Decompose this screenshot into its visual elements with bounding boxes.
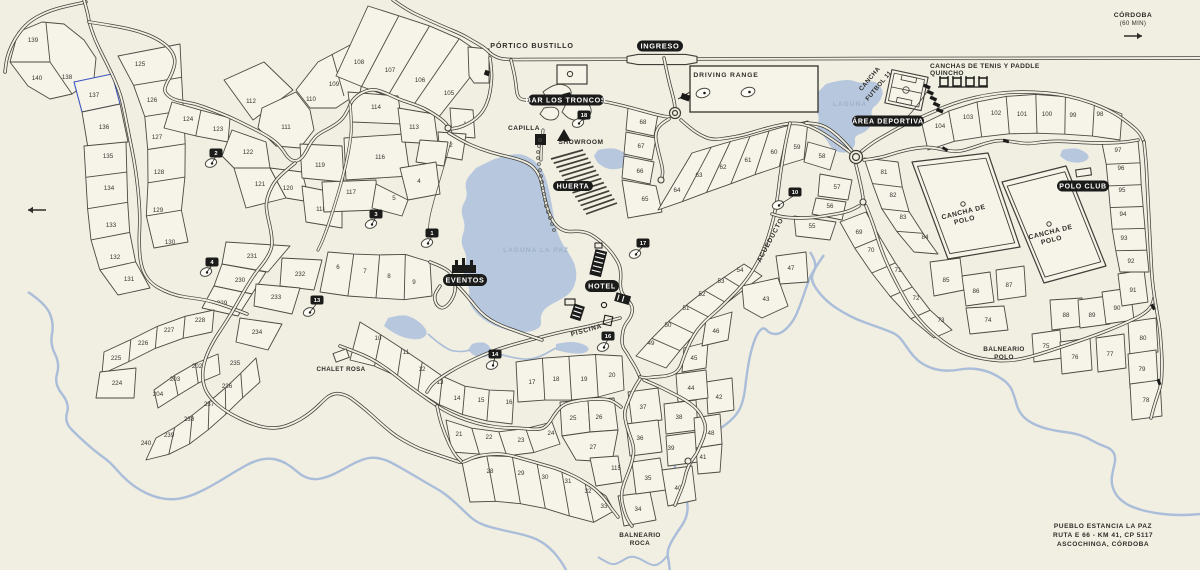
svg-text:HUERTA: HUERTA xyxy=(557,184,590,191)
svg-text:57: 57 xyxy=(834,184,841,191)
svg-text:85: 85 xyxy=(943,277,950,284)
svg-text:47: 47 xyxy=(788,265,795,272)
svg-text:91: 91 xyxy=(1130,287,1137,294)
svg-text:45: 45 xyxy=(691,355,698,362)
svg-text:5: 5 xyxy=(392,195,396,202)
svg-text:26: 26 xyxy=(596,414,603,421)
svg-text:71: 71 xyxy=(895,267,902,274)
svg-text:130: 130 xyxy=(165,239,176,246)
svg-text:96: 96 xyxy=(1118,165,1125,172)
svg-text:55: 55 xyxy=(809,223,816,230)
svg-text:28: 28 xyxy=(487,468,494,475)
svg-text:25: 25 xyxy=(570,415,577,422)
svg-text:228: 228 xyxy=(195,317,206,324)
svg-text:37: 37 xyxy=(640,404,647,411)
svg-text:230: 230 xyxy=(235,277,246,284)
svg-text:113: 113 xyxy=(409,124,419,131)
svg-text:HOTEL: HOTEL xyxy=(588,282,616,291)
svg-text:82: 82 xyxy=(890,192,897,199)
svg-text:SHOWROOM: SHOWROOM xyxy=(558,139,603,146)
svg-text:DRIVING RANGE: DRIVING RANGE xyxy=(693,72,758,79)
svg-text:122: 122 xyxy=(243,149,254,156)
svg-text:14: 14 xyxy=(492,352,499,358)
svg-text:87: 87 xyxy=(1006,282,1013,289)
svg-text:29: 29 xyxy=(518,470,525,477)
svg-text:14: 14 xyxy=(454,395,461,402)
svg-text:76: 76 xyxy=(1072,354,1079,361)
svg-text:16: 16 xyxy=(506,399,513,406)
svg-text:101: 101 xyxy=(1017,111,1028,118)
svg-text:92: 92 xyxy=(1128,258,1135,265)
svg-text:51: 51 xyxy=(683,305,690,312)
svg-text:109: 109 xyxy=(329,81,340,88)
svg-text:13: 13 xyxy=(314,298,321,304)
svg-text:16: 16 xyxy=(605,334,612,340)
svg-text:CAPILLA: CAPILLA xyxy=(508,125,540,132)
svg-text:19: 19 xyxy=(581,376,588,383)
svg-text:36: 36 xyxy=(637,435,644,442)
svg-text:94: 94 xyxy=(1120,211,1127,218)
svg-text:95: 95 xyxy=(1119,187,1126,194)
svg-text:34: 34 xyxy=(635,506,642,513)
svg-text:115: 115 xyxy=(611,465,621,472)
svg-text:38: 38 xyxy=(676,414,683,421)
svg-text:69: 69 xyxy=(856,229,863,236)
svg-text:132: 132 xyxy=(110,254,121,261)
svg-text:224: 224 xyxy=(112,380,123,387)
svg-text:73: 73 xyxy=(938,317,945,324)
svg-text:53: 53 xyxy=(718,278,725,285)
svg-text:23: 23 xyxy=(518,437,525,444)
svg-text:62: 62 xyxy=(720,164,727,171)
svg-text:61: 61 xyxy=(745,157,752,164)
svg-text:10: 10 xyxy=(792,190,798,196)
svg-text:39: 39 xyxy=(668,445,675,452)
svg-text:POLO CLUB: POLO CLUB xyxy=(1059,184,1107,191)
svg-text:22: 22 xyxy=(486,434,493,441)
svg-text:64: 64 xyxy=(674,187,681,194)
svg-text:117: 117 xyxy=(346,189,356,196)
svg-text:17: 17 xyxy=(529,379,536,386)
svg-text:ÁREA DEPORTIVA: ÁREA DEPORTIVA xyxy=(852,117,924,126)
svg-text:66: 66 xyxy=(637,168,644,175)
svg-text:120: 120 xyxy=(283,185,294,192)
svg-text:52: 52 xyxy=(699,291,706,298)
svg-text:50: 50 xyxy=(665,322,672,329)
svg-text:232: 232 xyxy=(295,271,306,278)
svg-text:84: 84 xyxy=(922,234,929,241)
svg-text:49: 49 xyxy=(648,340,655,347)
svg-text:21: 21 xyxy=(456,431,463,438)
svg-text:79: 79 xyxy=(1139,366,1146,373)
svg-text:INGRESO: INGRESO xyxy=(641,42,680,51)
svg-text:QUINCHO: QUINCHO xyxy=(930,70,964,77)
svg-text:127: 127 xyxy=(152,134,163,141)
svg-text:104: 104 xyxy=(935,123,946,130)
svg-text:4: 4 xyxy=(417,178,421,185)
svg-text:18: 18 xyxy=(581,113,588,119)
svg-text:86: 86 xyxy=(973,288,980,295)
svg-text:226: 226 xyxy=(138,340,149,347)
svg-text:LAGUNA: LAGUNA xyxy=(833,101,867,108)
svg-text:137: 137 xyxy=(89,92,100,99)
svg-text:81: 81 xyxy=(881,169,888,176)
svg-text:65: 65 xyxy=(642,196,649,203)
svg-text:58: 58 xyxy=(819,153,826,160)
svg-text:93: 93 xyxy=(1121,235,1128,242)
svg-text:44: 44 xyxy=(688,385,695,392)
svg-text:238: 238 xyxy=(184,416,195,423)
svg-text:32: 32 xyxy=(585,488,592,495)
svg-text:98: 98 xyxy=(1097,111,1104,118)
svg-text:100: 100 xyxy=(1042,111,1053,118)
svg-text:110: 110 xyxy=(306,96,316,103)
svg-text:27: 27 xyxy=(590,444,597,451)
svg-text:74: 74 xyxy=(985,317,992,324)
svg-text:135: 135 xyxy=(103,153,114,160)
svg-text:112: 112 xyxy=(246,98,256,105)
svg-text:PÓRTICO BUSTILLO: PÓRTICO BUSTILLO xyxy=(490,41,573,50)
svg-text:227: 227 xyxy=(164,327,175,334)
svg-text:203: 203 xyxy=(170,376,181,383)
svg-text:59: 59 xyxy=(794,144,801,151)
svg-text:131: 131 xyxy=(124,276,135,283)
svg-text:80: 80 xyxy=(1140,335,1147,342)
svg-text:24: 24 xyxy=(548,430,555,437)
svg-text:ROCA: ROCA xyxy=(630,540,650,547)
svg-text:129: 129 xyxy=(153,207,164,214)
svg-text:134: 134 xyxy=(104,185,115,192)
svg-text:20: 20 xyxy=(609,372,616,379)
svg-text:235: 235 xyxy=(230,360,241,367)
svg-text:123: 123 xyxy=(213,126,224,133)
svg-text:136: 136 xyxy=(99,124,110,131)
svg-text:12: 12 xyxy=(419,366,426,373)
svg-text:BAR LOS TRONCOS: BAR LOS TRONCOS xyxy=(526,96,607,105)
svg-text:41: 41 xyxy=(700,454,707,461)
svg-text:231: 231 xyxy=(247,253,258,260)
svg-text:105: 105 xyxy=(444,90,455,97)
svg-text:72: 72 xyxy=(913,295,920,302)
svg-text:(60 MIN): (60 MIN) xyxy=(1120,20,1146,27)
svg-text:30: 30 xyxy=(542,474,549,481)
svg-text:126: 126 xyxy=(147,97,158,104)
svg-text:138: 138 xyxy=(62,74,73,81)
svg-text:139: 139 xyxy=(28,37,39,44)
svg-text:106: 106 xyxy=(415,77,426,84)
svg-text:128: 128 xyxy=(154,169,165,176)
svg-text:48: 48 xyxy=(708,430,715,437)
svg-text:18: 18 xyxy=(553,376,560,383)
svg-text:42: 42 xyxy=(716,394,723,401)
svg-text:119: 119 xyxy=(315,162,325,169)
svg-text:202: 202 xyxy=(192,363,203,370)
svg-text:90: 90 xyxy=(1114,305,1121,312)
svg-text:17: 17 xyxy=(640,241,646,247)
svg-text:8: 8 xyxy=(387,273,391,280)
svg-text:89: 89 xyxy=(1089,312,1096,319)
svg-text:78: 78 xyxy=(1143,397,1150,404)
svg-text:88: 88 xyxy=(1063,312,1070,319)
svg-text:15: 15 xyxy=(478,397,485,404)
svg-text:140: 140 xyxy=(32,75,43,82)
svg-text:ASCOCHINGA, CÓRDOBA: ASCOCHINGA, CÓRDOBA xyxy=(1057,539,1149,548)
svg-text:233: 233 xyxy=(271,294,282,301)
svg-text:204: 204 xyxy=(153,391,164,398)
svg-text:46: 46 xyxy=(713,328,720,335)
svg-text:75: 75 xyxy=(1043,343,1050,350)
svg-text:63: 63 xyxy=(696,172,703,179)
svg-text:POLO: POLO xyxy=(994,354,1014,361)
svg-text:111: 111 xyxy=(281,124,291,131)
svg-text:35: 35 xyxy=(645,475,652,482)
svg-text:31: 31 xyxy=(565,478,572,485)
svg-text:124: 124 xyxy=(183,116,194,123)
svg-text:7: 7 xyxy=(363,268,367,275)
svg-text:107: 107 xyxy=(385,67,396,74)
svg-text:116: 116 xyxy=(375,154,385,161)
svg-text:CANCHAS DE TENIS Y PADDLE: CANCHAS DE TENIS Y PADDLE xyxy=(930,63,1040,70)
svg-text:43: 43 xyxy=(763,296,770,303)
svg-text:BALNEARIO: BALNEARIO xyxy=(983,346,1025,353)
svg-text:97: 97 xyxy=(1115,147,1122,154)
svg-text:56: 56 xyxy=(827,203,834,210)
svg-text:239: 239 xyxy=(164,432,175,439)
svg-text:PUEBLO ESTANCIA LA PAZ: PUEBLO ESTANCIA LA PAZ xyxy=(1054,523,1152,530)
svg-text:CÓRDOBA: CÓRDOBA xyxy=(1114,10,1153,19)
svg-text:CHALET ROSA: CHALET ROSA xyxy=(316,366,365,373)
svg-text:114: 114 xyxy=(371,104,381,111)
svg-text:121: 121 xyxy=(255,181,266,188)
svg-text:54: 54 xyxy=(737,267,744,274)
svg-text:99: 99 xyxy=(1070,112,1077,119)
svg-text:2: 2 xyxy=(214,151,217,157)
svg-text:103: 103 xyxy=(963,114,974,121)
svg-text:70: 70 xyxy=(868,247,875,254)
svg-text:9: 9 xyxy=(412,279,416,286)
svg-text:133: 133 xyxy=(106,222,117,229)
svg-text:236: 236 xyxy=(222,383,233,390)
svg-text:108: 108 xyxy=(354,59,365,66)
svg-text:77: 77 xyxy=(1107,351,1114,358)
svg-text:240: 240 xyxy=(141,440,152,447)
svg-text:BALNEARIO: BALNEARIO xyxy=(619,532,661,539)
svg-text:68: 68 xyxy=(640,119,647,126)
svg-text:225: 225 xyxy=(111,355,122,362)
svg-text:67: 67 xyxy=(638,143,645,150)
svg-text:11: 11 xyxy=(403,349,410,356)
svg-text:EVENTOS: EVENTOS xyxy=(445,276,484,285)
svg-text:102: 102 xyxy=(991,110,1002,117)
svg-text:10: 10 xyxy=(375,335,382,342)
svg-text:LAGUNA LA PAZ: LAGUNA LA PAZ xyxy=(503,247,569,254)
svg-text:6: 6 xyxy=(336,264,340,271)
svg-text:83: 83 xyxy=(900,214,907,221)
svg-text:60: 60 xyxy=(771,149,778,156)
svg-text:234: 234 xyxy=(252,329,263,336)
svg-text:RUTA E 66 - KM 41, CP 5117: RUTA E 66 - KM 41, CP 5117 xyxy=(1053,532,1153,539)
svg-text:125: 125 xyxy=(135,61,146,68)
